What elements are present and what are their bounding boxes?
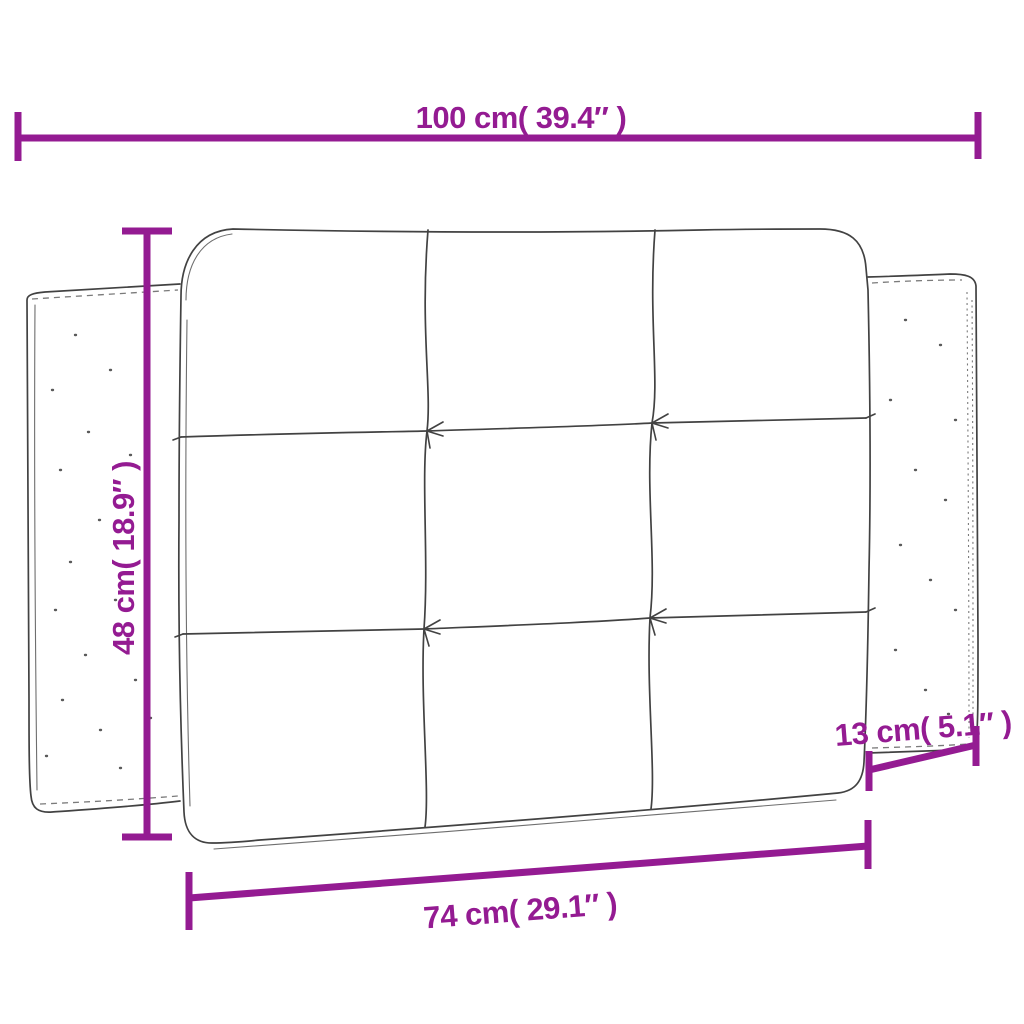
right-panel-texture-top [872,280,962,283]
dimension-label-height: 48 cm( 18.9″ ) [106,461,141,655]
headboard-sketch [27,229,978,849]
dimension-height: 48 cm( 18.9″ ) [106,231,172,837]
left-panel-inner-edge [35,305,37,790]
left-panel-outline [27,284,180,812]
right-panel-texture-edge [967,292,973,738]
cushion-outline [179,229,870,843]
left-back-panel [27,284,180,812]
right-panel-speckles [890,320,956,714]
cushion-front [173,229,875,849]
dimension-label-inner-width: 74 cm( 29.1″ ) [422,886,618,936]
right-panel-outline [868,274,978,753]
dimension-overall-width: 100 cm( 39.4″ ) [18,100,978,161]
dimension-label-overall-width: 100 cm( 39.4″ ) [416,100,627,135]
diagram-canvas: 100 cm( 39.4″ ) 48 cm( 18.9″ ) 13 cm( 5.… [0,0,1024,1024]
diagram-svg: 100 cm( 39.4″ ) 48 cm( 18.9″ ) 13 cm( 5.… [0,0,1024,1024]
right-back-panel [868,274,978,753]
dimension-line-inner-width [189,846,868,898]
